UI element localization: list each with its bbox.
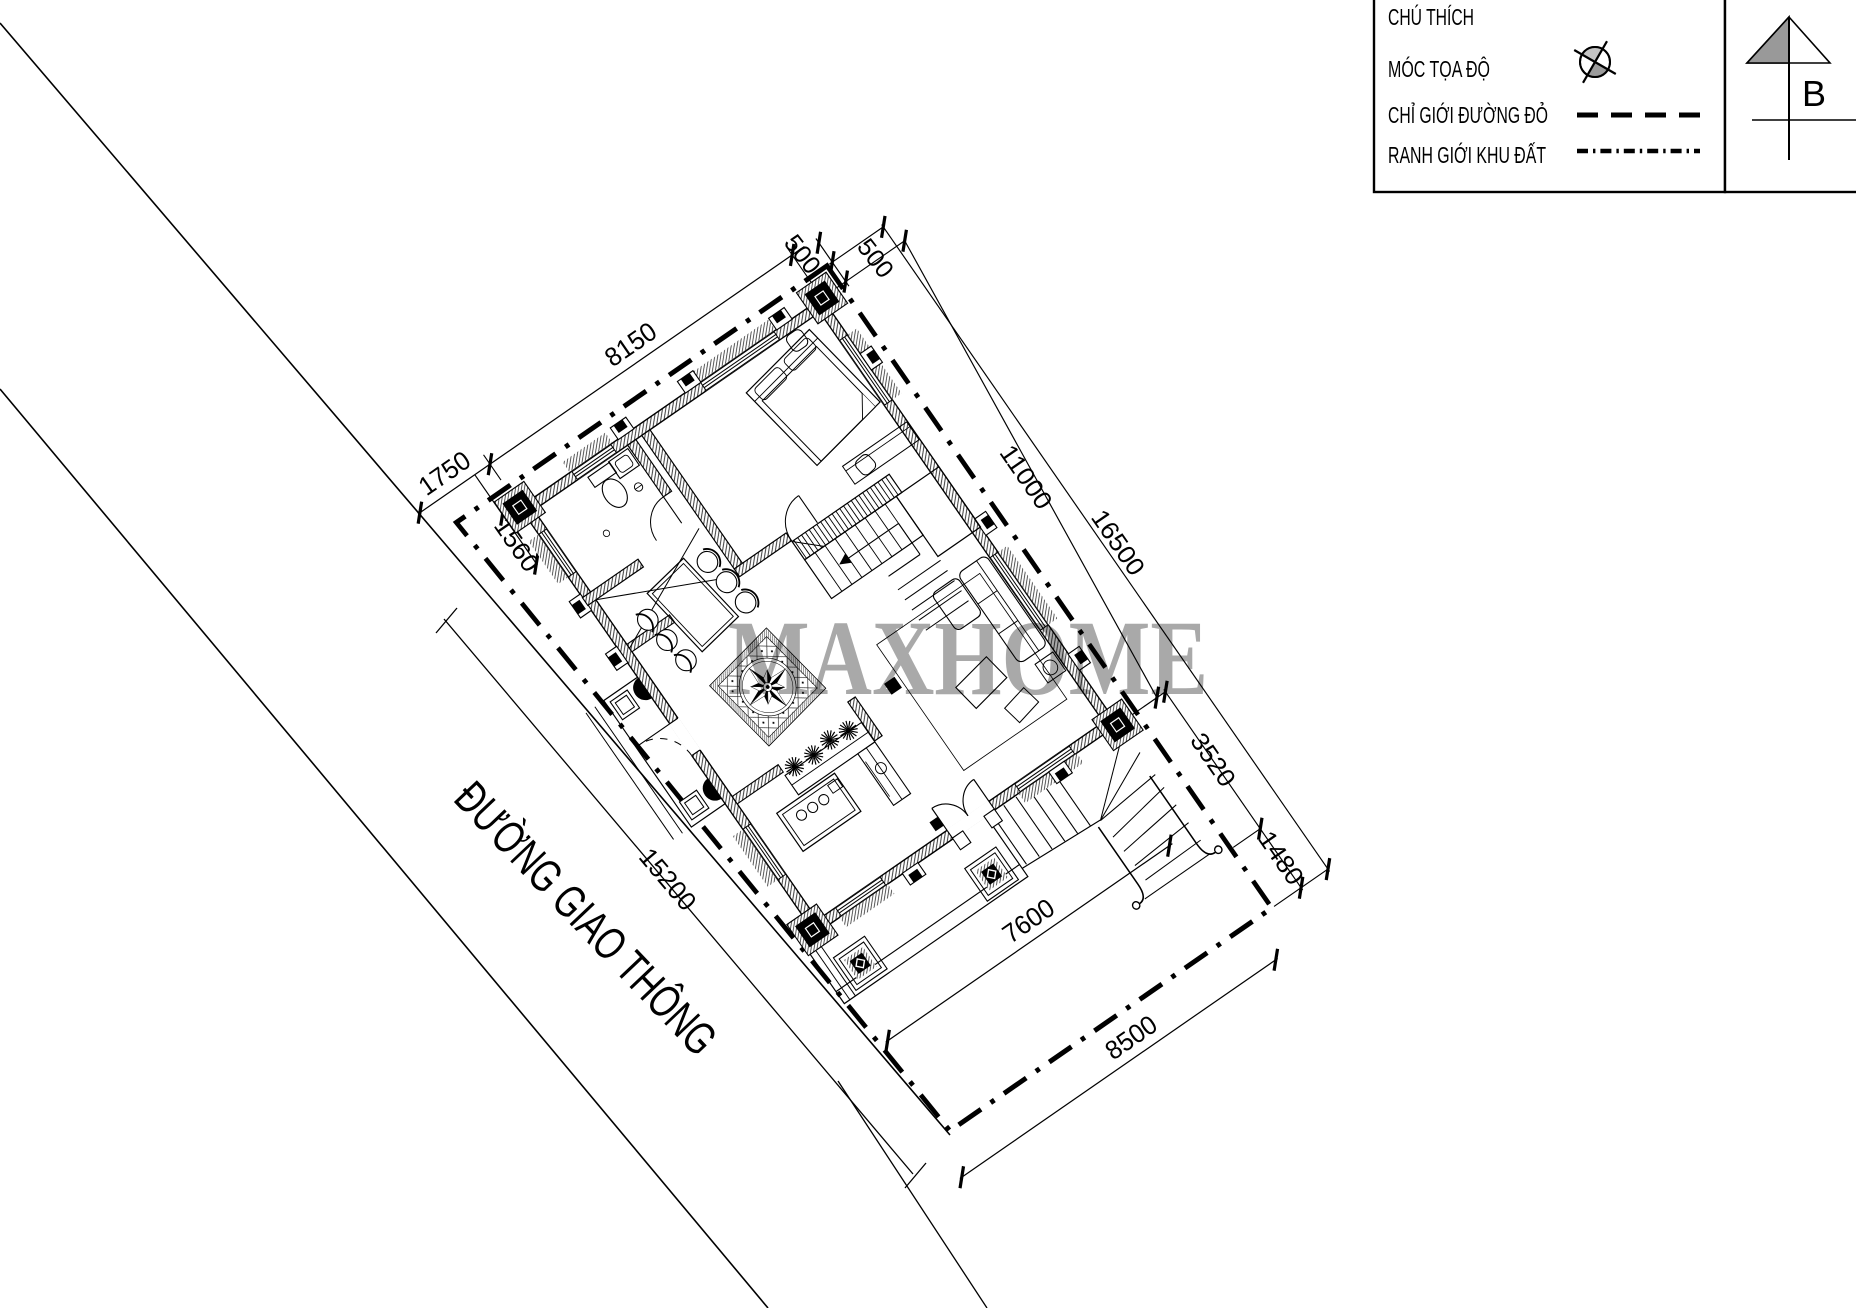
svg-text:3520: 3520 — [1184, 728, 1240, 792]
svg-text:CHỈ GIỚI ĐƯỜNG ĐỎ: CHỈ GIỚI ĐƯỜNG ĐỎ — [1388, 100, 1548, 128]
svg-text:16500: 16500 — [1085, 505, 1149, 581]
svg-text:1750: 1750 — [414, 446, 476, 502]
svg-text:CHÚ THÍCH: CHÚ THÍCH — [1388, 4, 1474, 30]
svg-text:RANH GIỚI KHU ĐẤT: RANH GIỚI KHU ĐẤT — [1388, 141, 1546, 168]
svg-text:11000: 11000 — [994, 440, 1057, 514]
svg-text:7600: 7600 — [998, 894, 1060, 950]
svg-text:15200: 15200 — [633, 842, 703, 917]
svg-text:MAXHOME: MAXHOME — [728, 600, 1208, 718]
svg-text:1480: 1480 — [1252, 826, 1308, 890]
svg-text:500: 500 — [851, 233, 899, 283]
svg-text:8150: 8150 — [600, 317, 662, 373]
svg-text:MÓC TỌA ĐỘ: MÓC TỌA ĐỘ — [1388, 55, 1490, 82]
svg-text:ĐƯỜNG GIAO THÔNG: ĐƯỜNG GIAO THÔNG — [445, 771, 728, 1065]
svg-text:B: B — [1802, 73, 1826, 114]
